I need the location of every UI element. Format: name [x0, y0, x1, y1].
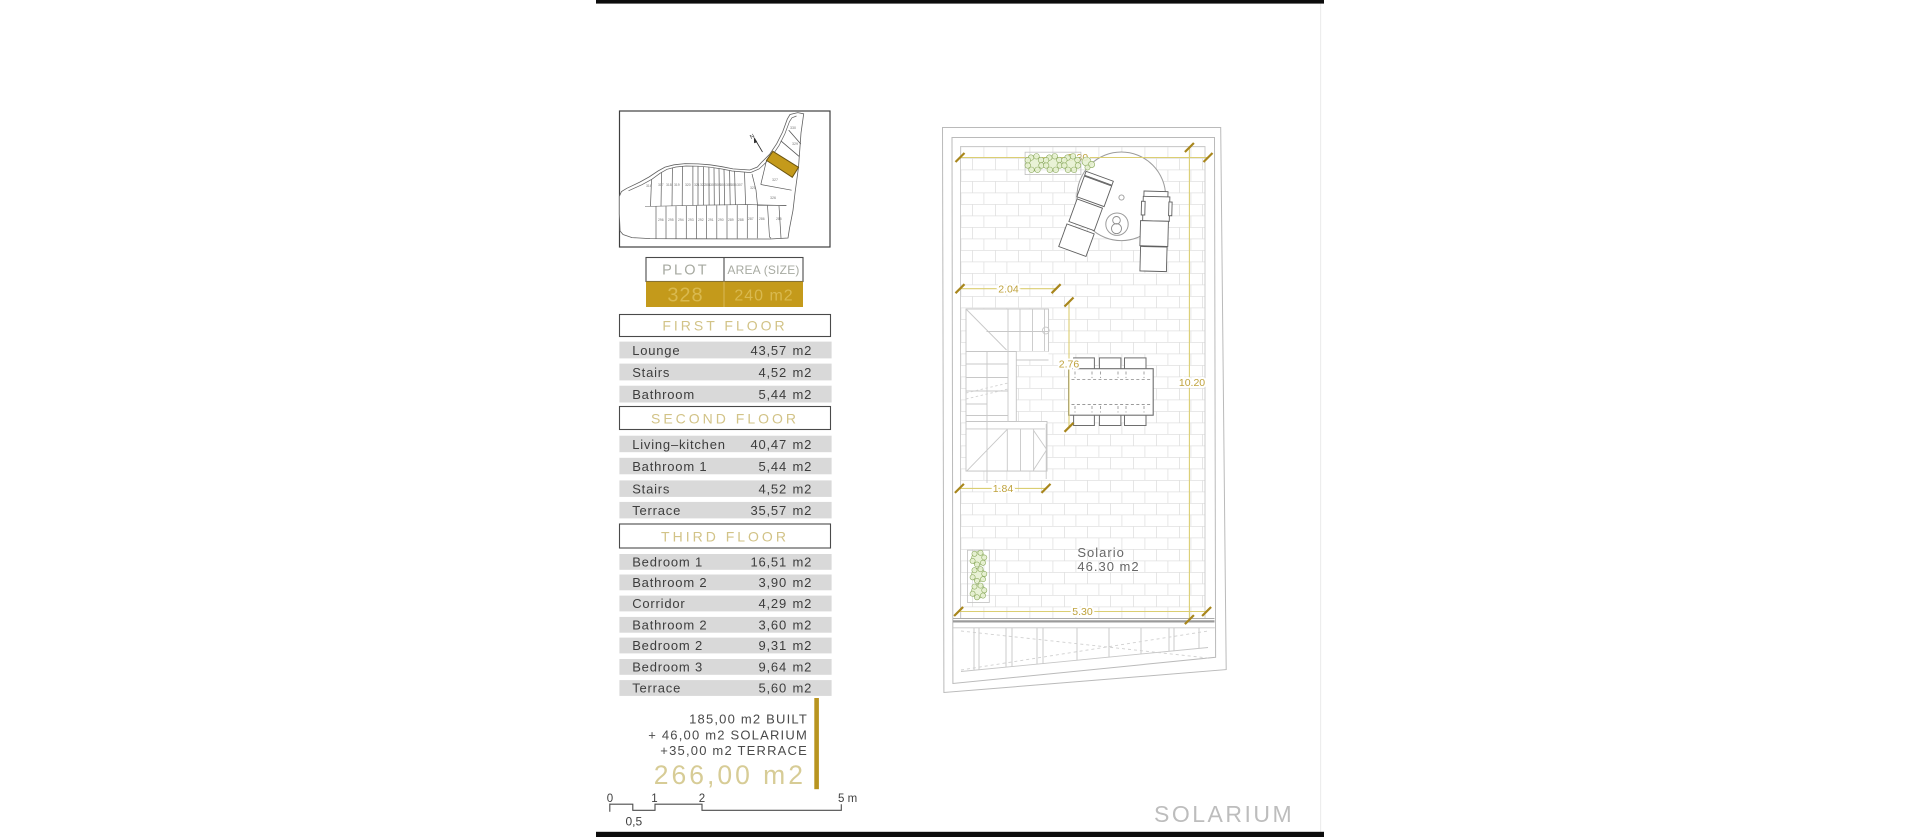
svg-text:285: 285 — [776, 217, 782, 221]
svg-text:0,5: 0,5 — [625, 815, 642, 829]
svg-text:9,64: 9,64 — [758, 660, 787, 675]
svg-text:2.76: 2.76 — [1059, 359, 1080, 371]
svg-text:Bathroom: Bathroom — [632, 387, 695, 402]
svg-text:m2: m2 — [793, 503, 813, 518]
svg-text:5 m: 5 m — [838, 793, 857, 805]
svg-text:4,52: 4,52 — [758, 365, 787, 380]
svg-text:FIRST FLOOR: FIRST FLOOR — [662, 318, 787, 334]
svg-text:AREA (SIZE): AREA (SIZE) — [727, 263, 799, 277]
svg-text:Bathroom 1: Bathroom 1 — [632, 459, 707, 474]
svg-text:320: 320 — [685, 183, 691, 187]
svg-text:THIRD FLOOR: THIRD FLOOR — [661, 529, 789, 545]
svg-text:296: 296 — [658, 218, 664, 222]
svg-text:m2: m2 — [793, 638, 813, 653]
svg-text:40,47: 40,47 — [750, 437, 787, 452]
svg-text:16,51: 16,51 — [750, 555, 787, 570]
svg-text:288: 288 — [738, 218, 744, 222]
svg-text:330: 330 — [790, 126, 796, 130]
svg-text:317: 317 — [658, 183, 664, 187]
svg-text:m2: m2 — [793, 596, 813, 611]
svg-text:m2: m2 — [793, 387, 813, 402]
svg-text:293: 293 — [688, 218, 694, 222]
svg-text:306: 306 — [731, 183, 737, 187]
svg-text:316: 316 — [646, 184, 652, 188]
svg-text:325: 325 — [750, 186, 756, 190]
svg-text:3,60: 3,60 — [758, 618, 787, 633]
svg-text:5.30: 5.30 — [1072, 606, 1093, 618]
svg-text:m2: m2 — [793, 660, 813, 675]
svg-text:+ 46,00 m2 SOLARIUM: + 46,00 m2 SOLARIUM — [648, 727, 808, 742]
svg-text:321: 321 — [694, 183, 700, 187]
svg-text:Corridor: Corridor — [632, 596, 685, 611]
svg-text:m2: m2 — [793, 459, 813, 474]
svg-text:291: 291 — [708, 218, 714, 222]
svg-text:m2: m2 — [793, 681, 813, 696]
svg-text:Bedroom 3: Bedroom 3 — [632, 660, 703, 675]
svg-text:9,31: 9,31 — [758, 638, 787, 653]
svg-text:m2: m2 — [793, 343, 813, 358]
svg-text:Bedroom 1: Bedroom 1 — [632, 555, 703, 570]
svg-text:307: 307 — [737, 183, 743, 187]
svg-text:Bathroom 2: Bathroom 2 — [632, 575, 707, 590]
svg-text:m2: m2 — [793, 365, 813, 380]
svg-text:m2: m2 — [793, 437, 813, 452]
svg-text:304: 304 — [720, 183, 726, 187]
svg-text:m2: m2 — [793, 482, 813, 497]
svg-text:m2: m2 — [793, 618, 813, 633]
svg-text:290: 290 — [718, 218, 724, 222]
svg-text:10.20: 10.20 — [1179, 377, 1205, 389]
svg-text:294: 294 — [678, 218, 684, 222]
svg-text:4,29: 4,29 — [758, 596, 787, 611]
svg-text:327: 327 — [772, 178, 778, 182]
svg-text:m2: m2 — [793, 555, 813, 570]
svg-text:287: 287 — [748, 217, 754, 221]
svg-text:319: 319 — [674, 183, 680, 187]
svg-text:4,52: 4,52 — [758, 482, 787, 497]
svg-text:Lounge: Lounge — [632, 343, 680, 358]
svg-text:PLOT: PLOT — [662, 263, 709, 279]
svg-text:2.04: 2.04 — [998, 283, 1019, 295]
svg-text:SECOND FLOOR: SECOND FLOOR — [651, 411, 799, 427]
svg-text:m2: m2 — [793, 575, 813, 590]
svg-text:Terrace: Terrace — [632, 681, 681, 696]
svg-text:5,44: 5,44 — [758, 459, 787, 474]
svg-text:Stairs: Stairs — [632, 365, 670, 380]
svg-text:1.84: 1.84 — [993, 483, 1014, 495]
svg-text:Stairs: Stairs — [632, 482, 670, 497]
svg-text:35,57: 35,57 — [750, 503, 787, 518]
svg-text:3,90: 3,90 — [758, 575, 787, 590]
svg-text:43,57: 43,57 — [750, 343, 787, 358]
svg-text:1: 1 — [651, 793, 657, 805]
svg-text:185,00 m2 BUILT: 185,00 m2 BUILT — [689, 712, 808, 727]
svg-text:295: 295 — [668, 218, 674, 222]
svg-text:Living–kitchen: Living–kitchen — [632, 437, 726, 452]
svg-text:292: 292 — [698, 218, 704, 222]
svg-text:+35,00 m2 TERRACE: +35,00 m2 TERRACE — [660, 743, 808, 758]
svg-text:318: 318 — [666, 183, 672, 187]
svg-text:5,60: 5,60 — [758, 681, 787, 696]
svg-text:328: 328 — [667, 285, 703, 307]
svg-text:2: 2 — [699, 793, 705, 805]
svg-text:0: 0 — [607, 793, 613, 805]
svg-text:5,44: 5,44 — [758, 387, 787, 402]
svg-text:Bedroom 2: Bedroom 2 — [632, 638, 703, 653]
svg-text:289: 289 — [728, 218, 734, 222]
svg-text:46.30 m2: 46.30 m2 — [1077, 559, 1139, 574]
svg-text:Terrace: Terrace — [632, 503, 681, 518]
svg-text:326: 326 — [770, 196, 776, 200]
svg-text:286: 286 — [759, 217, 765, 221]
svg-text:Bathroom 2: Bathroom 2 — [632, 618, 707, 633]
svg-text:329: 329 — [792, 142, 798, 146]
svg-text:266,00 m2: 266,00 m2 — [654, 760, 806, 790]
svg-text:SOLARIUM: SOLARIUM — [1154, 801, 1294, 827]
svg-text:Solario: Solario — [1077, 545, 1124, 560]
svg-text:240 m2: 240 m2 — [734, 288, 793, 305]
